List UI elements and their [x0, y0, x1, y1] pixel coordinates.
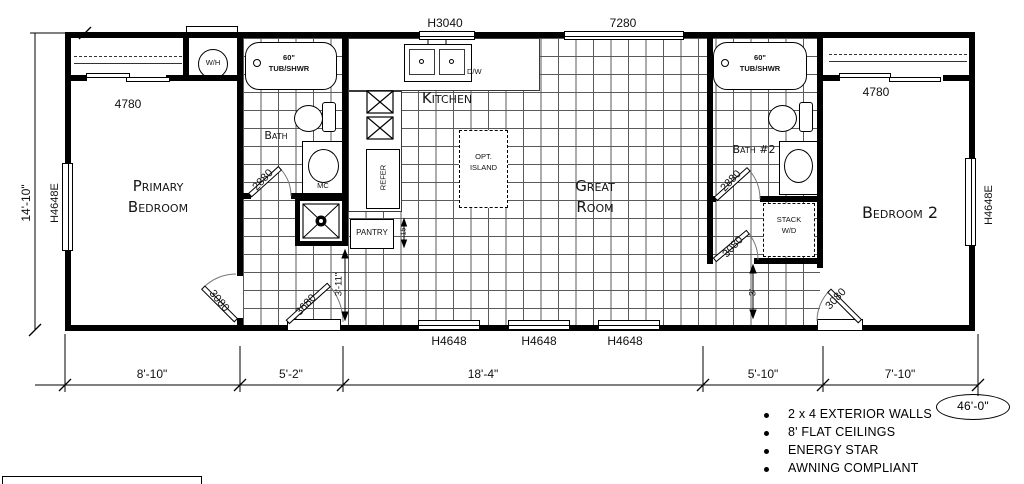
closet1-slider-rail2: [126, 77, 170, 82]
bullet-icon: [764, 413, 769, 418]
dim-seg3: 18'-4": [453, 367, 513, 381]
bath1-tub-size: 60": [259, 53, 319, 62]
bath2-south-wall: [760, 196, 823, 202]
window-kitchen-h3040: [419, 31, 475, 40]
window-rear1-label: H4648: [418, 334, 480, 348]
feature-item: 8' FLAT CEILINGS: [752, 425, 1022, 443]
window-kitchen-label: H3040: [412, 16, 478, 30]
bath1-south-wall: [291, 193, 348, 199]
window-rear-1: [418, 320, 480, 330]
water-heater-label: W/H: [198, 58, 228, 67]
closet1-wall-right: [166, 75, 237, 81]
dim-seg1: 8'-10": [122, 367, 182, 381]
dim-hall-left: 3'-11": [334, 260, 345, 310]
kitchen-label: Kitchen: [397, 88, 497, 109]
pantry-label: PANTRY: [351, 228, 393, 237]
closet1-slider-label: 4780: [98, 97, 158, 111]
closet1-wall-left: [71, 75, 87, 81]
window-rear2-label: H4648: [508, 334, 570, 348]
feature-item: AWNING COMPLIANT: [752, 461, 1022, 479]
window-left-label: H4648E: [49, 178, 61, 228]
dim-seg5: 7'-10": [870, 367, 930, 381]
stack-wd-label-line2: W/D: [764, 226, 814, 235]
closet2-slider-rail2: [889, 77, 941, 82]
dishwasher-label: D/W: [467, 67, 495, 76]
bedroom1-wall: [237, 38, 243, 276]
window-greatroom-label: 7280: [590, 16, 656, 30]
feature-text: ENERGY STAR: [788, 443, 879, 457]
bullet-icon: [764, 449, 769, 454]
bullet-icon: [764, 467, 769, 472]
closet2-wall-left: [823, 75, 840, 81]
bath2-west-wall: [707, 38, 713, 196]
stack-wd-label-line1: STACK: [764, 215, 814, 224]
primary-bedroom-label: Primary Bedroom: [103, 176, 213, 218]
dim-hall-right: 3': [748, 268, 759, 318]
laundry-south-wall: [754, 258, 823, 264]
feature-text: AWNING COMPLIANT: [788, 461, 919, 475]
island-label-line1: OPT.: [460, 152, 507, 161]
dim-seg4: 5'-10": [733, 367, 793, 381]
great-room-label: Great Room: [563, 176, 627, 218]
closet2-slider-label: 4780: [846, 85, 906, 99]
bath1-kitchen-wall: [342, 38, 348, 196]
exterior-door-right-threshold: [817, 319, 863, 331]
window-left-h4648e: [62, 163, 73, 251]
closet2-wall-right: [943, 75, 969, 81]
dim-seg2: 5'-2": [261, 367, 321, 381]
bedroom2-label: Bedroom 2: [838, 202, 962, 224]
bath2-tub-size: 60": [730, 53, 790, 62]
dim-side-height: 14'-10": [19, 179, 33, 227]
hall-west-wall: [707, 202, 713, 264]
feature-item: 2 x 4 EXTERIOR WALLS: [752, 407, 1022, 425]
window-rear-2: [508, 320, 570, 330]
refrigerator-label: REFER: [379, 144, 388, 212]
bedroom1-wall-stub: [237, 318, 243, 325]
closet2-slider-rail1: [839, 73, 891, 78]
window-right-label: H4648E: [983, 180, 995, 230]
dim-pantry-depth: 15: [401, 212, 408, 252]
closet1-slider-rail1: [86, 73, 130, 78]
shower-side-wall: [342, 196, 348, 246]
bedroom2-west-wall: [817, 38, 823, 268]
bath2-label: Bath #2: [716, 142, 792, 157]
window-rear3-label: H4648: [594, 334, 656, 348]
feature-item: ENERGY STAR: [752, 443, 1022, 461]
feature-list: 2 x 4 EXTERIOR WALLS 8' FLAT CEILINGS EN…: [752, 407, 1022, 479]
window-right-h4648e: [965, 158, 976, 246]
bath2-tub-type: TUB/SHWR: [730, 64, 790, 73]
medicine-cabinet-label: MC: [306, 181, 340, 190]
feature-text: 8' FLAT CEILINGS: [788, 425, 895, 439]
island-label-line2: ISLAND: [460, 163, 507, 172]
window-rear-3: [598, 320, 660, 330]
bath1-label: Bath: [248, 128, 304, 143]
bath1-tub-type: TUB/SHWR: [259, 64, 319, 73]
title-block-fragment: [2, 476, 202, 484]
floor-plan: Primary Bedroom Kitchen Great Room Bath …: [0, 0, 1024, 484]
feature-text: 2 x 4 EXTERIOR WALLS: [788, 407, 932, 421]
window-greatroom-7280: [564, 31, 684, 40]
bullet-icon: [764, 431, 769, 436]
